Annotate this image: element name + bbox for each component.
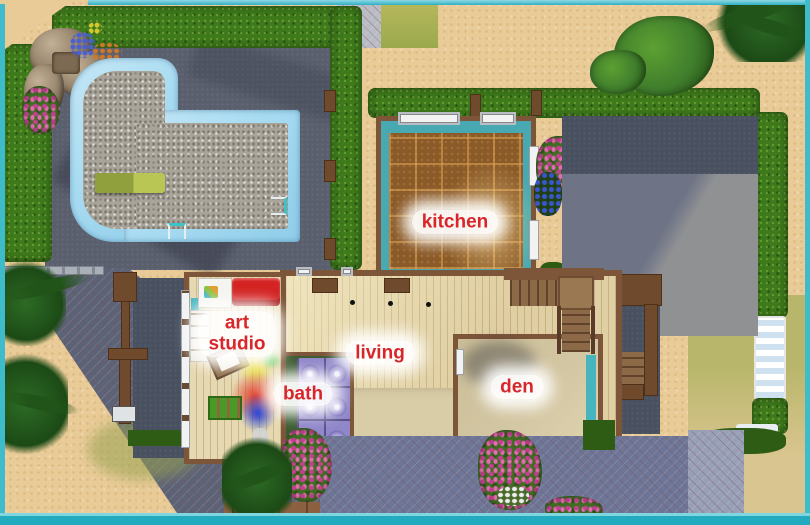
ceiling-light-dot[interactable] [388, 301, 393, 306]
stair-run-vertical [562, 310, 590, 352]
stair-landing [558, 276, 594, 310]
hedge-mid-vertical [330, 6, 362, 270]
room-label-den: den [490, 374, 544, 399]
kitchen-window[interactable] [480, 112, 516, 125]
swimming-pool[interactable] [70, 58, 300, 250]
room-label-text: bath [283, 383, 323, 404]
driveway-light-patch [688, 430, 744, 516]
back-patio-paving [562, 116, 758, 176]
ceiling-light-dot[interactable] [426, 302, 431, 307]
wall-vent [384, 278, 410, 293]
kitchen-window[interactable] [398, 112, 460, 125]
room-label-text: art [209, 313, 266, 334]
sofa[interactable] [232, 278, 280, 306]
kitchen-door[interactable] [529, 220, 539, 260]
room-label-text: den [500, 376, 534, 397]
fence-post [113, 272, 137, 302]
lounge-chair[interactable] [754, 316, 786, 400]
flower-blue [534, 172, 562, 216]
room-label-text: kitchen [422, 211, 489, 232]
fence-post [531, 90, 542, 116]
room-label-bath: bath [273, 381, 333, 406]
stair-run-horizontal [510, 280, 562, 306]
living-window[interactable] [341, 267, 353, 276]
flower-bush-white [497, 486, 529, 506]
gate-post [620, 274, 662, 306]
lot-border-top [88, 0, 810, 5]
art-cabinet[interactable] [198, 278, 232, 308]
den-door[interactable] [456, 349, 464, 375]
pool-ladder[interactable] [271, 197, 287, 215]
ceiling-light-dot[interactable] [350, 300, 355, 305]
mailbox[interactable] [106, 348, 150, 426]
fence-rail [644, 304, 658, 396]
flower-yellow [88, 22, 102, 34]
living-window[interactable] [296, 267, 312, 276]
wall-vent [312, 278, 338, 293]
stair-railing [591, 306, 595, 354]
fence-post [324, 160, 336, 182]
room-label-art-studio: art studio [199, 311, 276, 358]
fence-post [324, 90, 336, 112]
cabinet-art [204, 286, 218, 298]
studio-windows[interactable] [181, 290, 190, 448]
room-label-text: studio [209, 334, 266, 355]
pool-ladder[interactable] [168, 223, 186, 239]
room-label-living: living [345, 340, 415, 365]
game-world-view: kitchen art studio living bath den [0, 0, 810, 525]
mailbox-arm [108, 348, 148, 360]
fence-post [324, 238, 336, 260]
storage-crate[interactable] [208, 396, 242, 420]
staircase[interactable] [504, 268, 604, 354]
room-label-kitchen: kitchen [412, 209, 499, 234]
kitchen-room[interactable] [376, 116, 536, 276]
diving-board[interactable] [95, 173, 165, 193]
grass-patch-top [378, 0, 438, 48]
flower-bush [22, 86, 60, 134]
lot-border-bottom [0, 513, 810, 525]
lot-border-left [0, 4, 5, 525]
stair-railing [557, 306, 561, 354]
room-label-text: living [355, 342, 405, 363]
grass-square [583, 420, 615, 450]
palm-plant [0, 262, 66, 346]
mailbox-box [112, 406, 136, 422]
lot-border-right [805, 0, 810, 525]
